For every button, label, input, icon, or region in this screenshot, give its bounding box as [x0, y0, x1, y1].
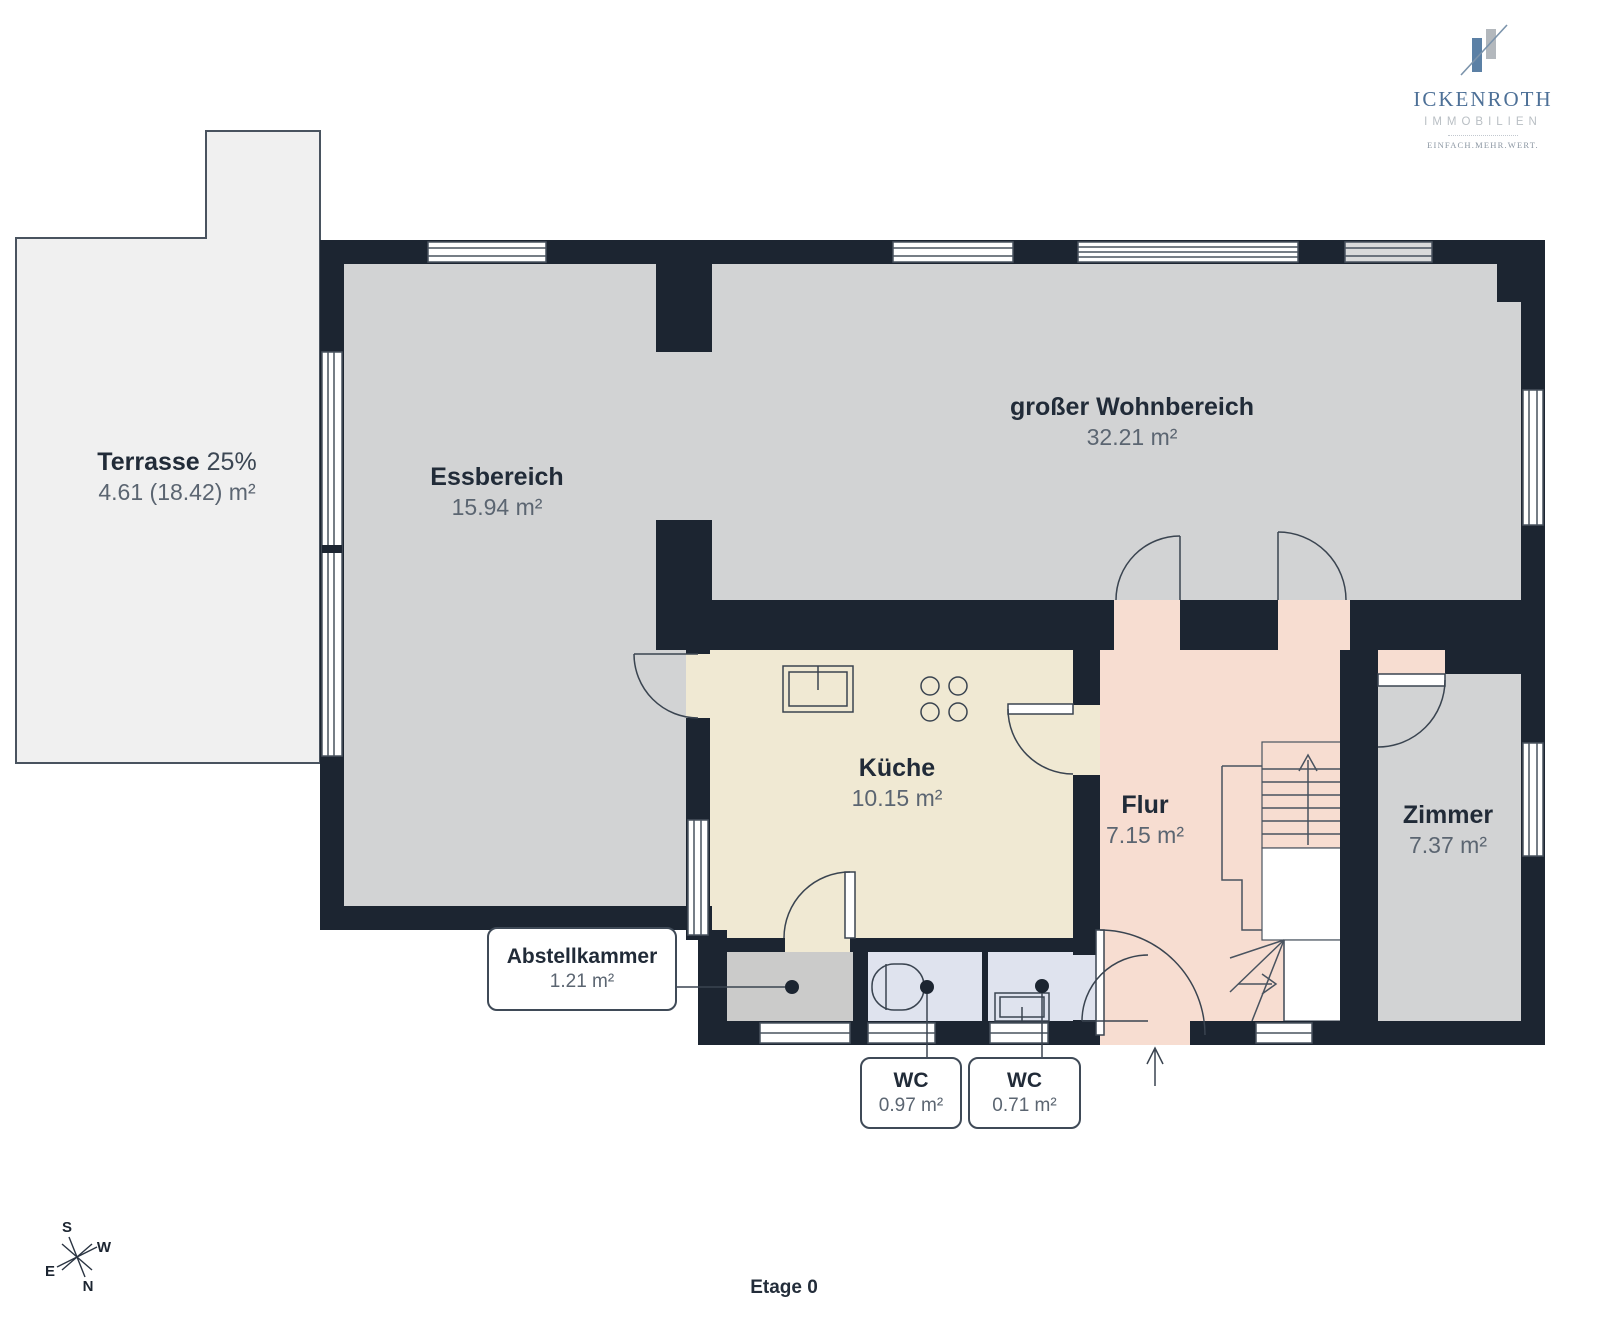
- callout-dot-storage: [785, 980, 799, 994]
- terrace-area: [16, 131, 320, 763]
- brand-tagline: EINFACH.MEHR.WERT.: [1398, 140, 1568, 150]
- terrace-sliding-door: [322, 352, 342, 756]
- brand-building-icon: [1455, 22, 1511, 78]
- window-top-dining: [428, 242, 546, 262]
- compass-north: N: [83, 1278, 94, 1295]
- window-top-living-right: [1345, 242, 1432, 262]
- brand-logo: ICKENROTH IMMOBILIEN EINFACH.MEHR.WERT.: [1398, 22, 1568, 150]
- room-area: 0.71 m²: [992, 1094, 1056, 1119]
- room-area: 0.97 m²: [879, 1094, 943, 1119]
- entry-arrow: [1147, 1048, 1163, 1086]
- room-name: Abstellkammer: [507, 943, 658, 970]
- window-kitchen-west: [688, 820, 708, 935]
- callout-abstellkammer: Abstellkammer 1.21 m²: [487, 927, 677, 1011]
- brand-subtitle: IMMOBILIEN: [1398, 116, 1568, 128]
- stairwell-void: [1262, 848, 1353, 940]
- room-floor: [1378, 674, 1521, 1021]
- compass-west: W: [97, 1239, 112, 1256]
- floor-label: Etage 0: [750, 1277, 818, 1299]
- callout-wc-right: WC 0.71 m²: [968, 1057, 1081, 1129]
- compass-east: E: [45, 1263, 55, 1280]
- kitchen-floor: [710, 650, 1078, 940]
- window-right-room: [1523, 743, 1543, 856]
- compass-rose: S W E N: [45, 1219, 112, 1295]
- window-right-living: [1523, 390, 1543, 525]
- floor-plan-canvas: S W E N Terrasse 25% 4.61 (18.42) m² Ess…: [0, 0, 1600, 1339]
- floor-plan-drawing: S W E N: [0, 0, 1600, 1339]
- room-name: WC: [894, 1067, 929, 1094]
- brand-name: ICKENROTH: [1398, 87, 1568, 112]
- window-top-living-wide: [1078, 242, 1298, 262]
- compass-south: S: [62, 1219, 72, 1236]
- window-top-living-left: [893, 242, 1013, 262]
- room-name: WC: [1007, 1067, 1042, 1094]
- callout-wc-left: WC 0.97 m²: [860, 1057, 962, 1129]
- brand-divider: [1448, 135, 1518, 136]
- callout-dot-wc-left: [920, 980, 934, 994]
- room-area: 1.21 m²: [550, 970, 614, 995]
- callout-dot-wc-right: [1035, 979, 1049, 993]
